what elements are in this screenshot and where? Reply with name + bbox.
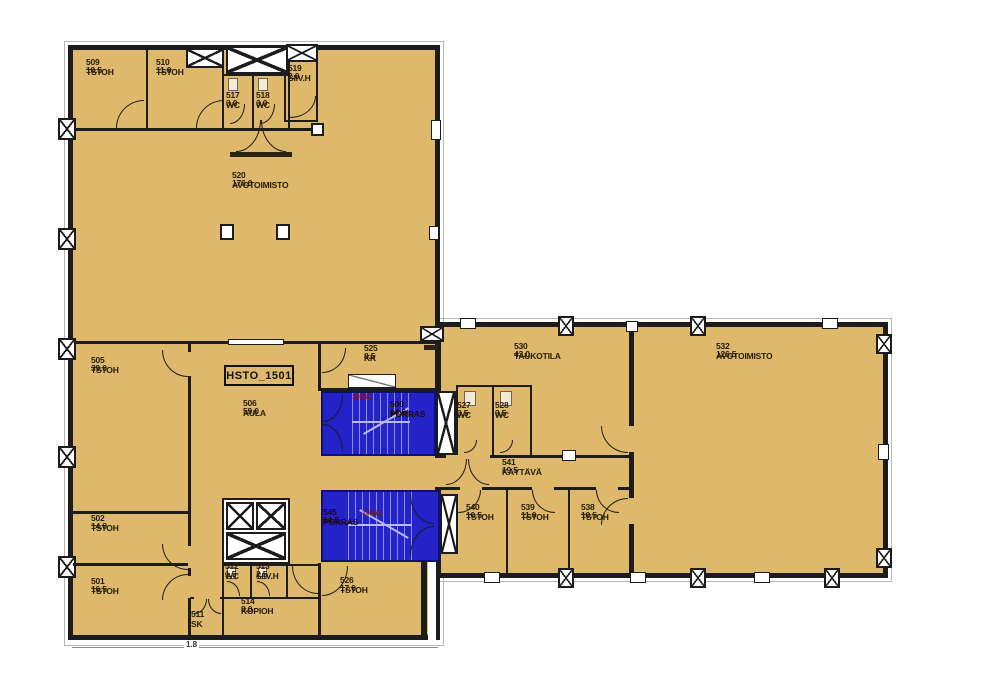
room-area: 8.5 — [364, 352, 375, 362]
vent-box — [558, 568, 574, 588]
room-area: 59.0 — [243, 407, 259, 417]
fixture-bar — [424, 345, 438, 350]
room-name: 511 SK — [191, 610, 204, 629]
room-area: 126.5 — [716, 350, 736, 360]
vent-box — [690, 568, 706, 588]
room-area: 10.5 — [581, 511, 597, 521]
wall-opening — [629, 426, 634, 452]
window-marker — [626, 321, 638, 332]
wall-opening — [188, 576, 191, 598]
room-area: 3.0 — [226, 99, 237, 109]
wall-segment — [568, 490, 570, 576]
wall-segment — [492, 385, 494, 457]
elevator-shaft — [186, 48, 224, 68]
wall-segment — [318, 563, 321, 638]
column — [276, 224, 290, 240]
vent-box — [690, 316, 706, 336]
room-area: 16.5 — [91, 585, 107, 595]
stair-id-label: 10162 — [352, 394, 371, 401]
window-marker — [754, 572, 770, 583]
room-area: 176.0 — [232, 179, 252, 189]
wall-segment — [286, 564, 288, 597]
room-area: 39.0 — [91, 364, 107, 374]
vent-box — [558, 316, 574, 336]
floor-plan: 1.8 509 TSTOH10.5 510 TSTOH11.0 517 WC3.… — [0, 0, 984, 689]
room-area: 1.5 — [225, 570, 236, 580]
wall-opening — [188, 546, 191, 568]
interior-window — [228, 339, 284, 345]
stair-shaft — [436, 391, 456, 455]
elevator-shaft — [226, 46, 288, 74]
room-area: 10.5 — [466, 511, 482, 521]
wall-segment — [318, 344, 321, 391]
room-area: 3.5 — [457, 409, 468, 419]
vent-box — [58, 556, 76, 578]
wall-opening — [188, 352, 191, 376]
column — [562, 450, 576, 461]
room-area: 14.5 — [323, 516, 339, 526]
elevator-shaft — [226, 532, 286, 560]
wall-segment — [73, 563, 188, 566]
vent-box — [58, 118, 76, 140]
wall-segment — [421, 558, 427, 638]
room-area: 10.5 — [86, 66, 102, 76]
room-area: 3.0 — [256, 99, 267, 109]
window-marker — [484, 572, 500, 583]
wall-segment — [146, 50, 148, 128]
vent-box — [58, 228, 76, 250]
dimension-label: 1.8 — [184, 640, 199, 649]
window-marker — [822, 318, 838, 329]
wall-segment — [250, 564, 252, 597]
room-area: 2.0 — [288, 72, 299, 82]
wall-segment — [222, 74, 288, 76]
vent-box — [876, 548, 892, 568]
vent-box — [58, 338, 76, 360]
vent-box — [876, 334, 892, 354]
elevator-shaft — [226, 502, 254, 530]
wall-segment — [222, 597, 224, 638]
unit-label: HSTO_1501 — [224, 365, 294, 386]
wall-segment — [222, 564, 224, 597]
room-area: 17.0 — [340, 584, 356, 594]
elevator-shaft — [286, 44, 318, 62]
vent-box — [824, 568, 840, 588]
room-area: 11.0 — [521, 511, 536, 521]
column — [220, 224, 234, 240]
room-area: 8.0 — [241, 605, 252, 615]
wall-opening — [435, 458, 441, 487]
room-area: 3.5 — [495, 409, 506, 419]
wall-opening — [446, 455, 490, 458]
room-area: 14.0 — [91, 522, 107, 532]
window-marker — [630, 572, 646, 583]
stair-shaft — [440, 494, 458, 554]
window-marker — [878, 444, 889, 460]
dimension-line — [72, 647, 438, 648]
vent-box — [58, 446, 76, 468]
window-marker — [431, 120, 441, 140]
wall-opening — [629, 498, 634, 524]
entrance-mat — [230, 152, 292, 157]
vent-box — [420, 326, 444, 342]
room-area: 2.5 — [256, 570, 267, 580]
wall-segment — [506, 490, 508, 576]
room-area: 11.0 — [156, 66, 171, 76]
building-notch — [428, 556, 436, 640]
room-area: 19.5 — [502, 466, 518, 476]
room-area: 43.0 — [514, 350, 530, 360]
elevator-shaft — [256, 502, 286, 530]
column — [311, 123, 324, 136]
room-area: 14.0 — [390, 408, 406, 418]
serving-hatch — [348, 374, 396, 388]
window-marker — [460, 318, 476, 329]
stair-id-label: 10161 — [362, 510, 381, 517]
window-marker — [429, 226, 439, 240]
